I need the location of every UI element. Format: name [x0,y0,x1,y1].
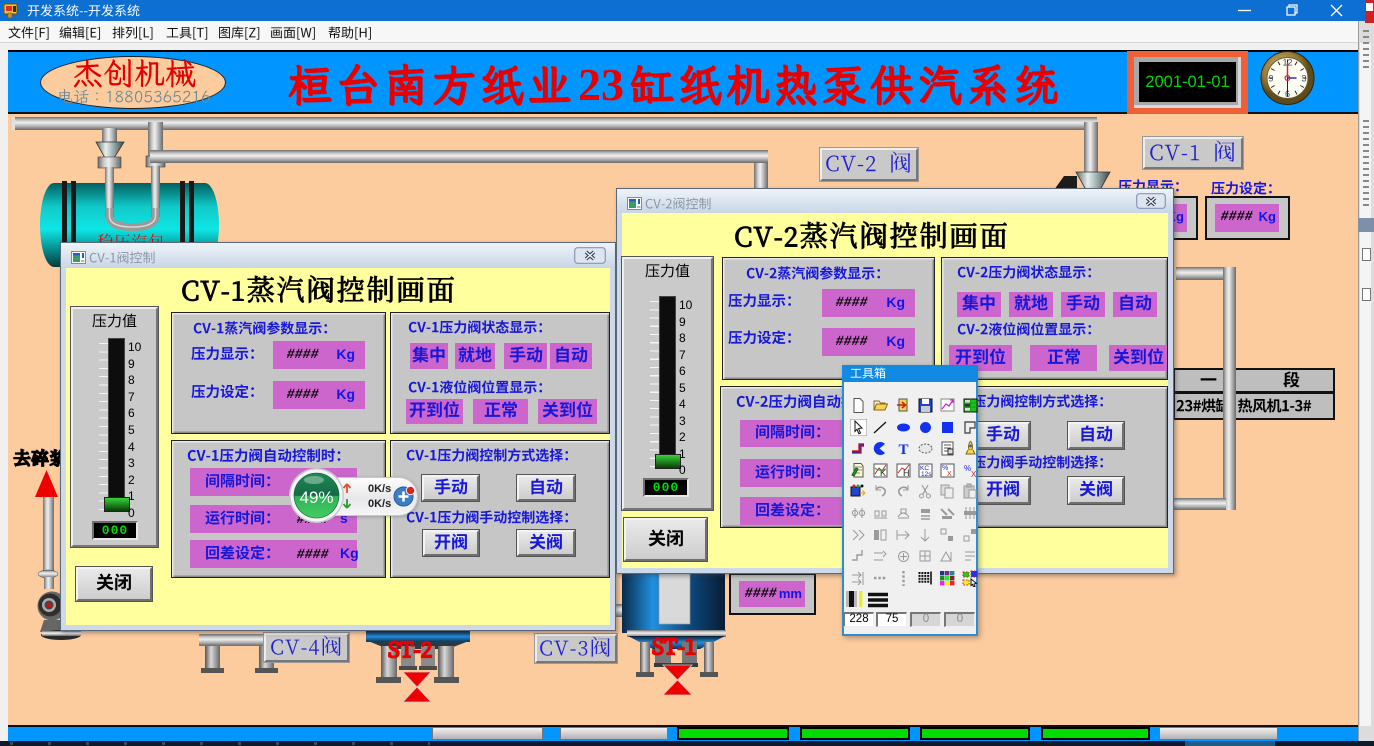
svg-text:T: T [898,442,908,457]
svg-text:49%: 49% [299,488,333,507]
svg-text:X: X [947,471,952,478]
svg-text:X: X [971,470,977,479]
svg-text:H: H [903,468,910,478]
svg-text:12s: 12s [921,471,932,478]
